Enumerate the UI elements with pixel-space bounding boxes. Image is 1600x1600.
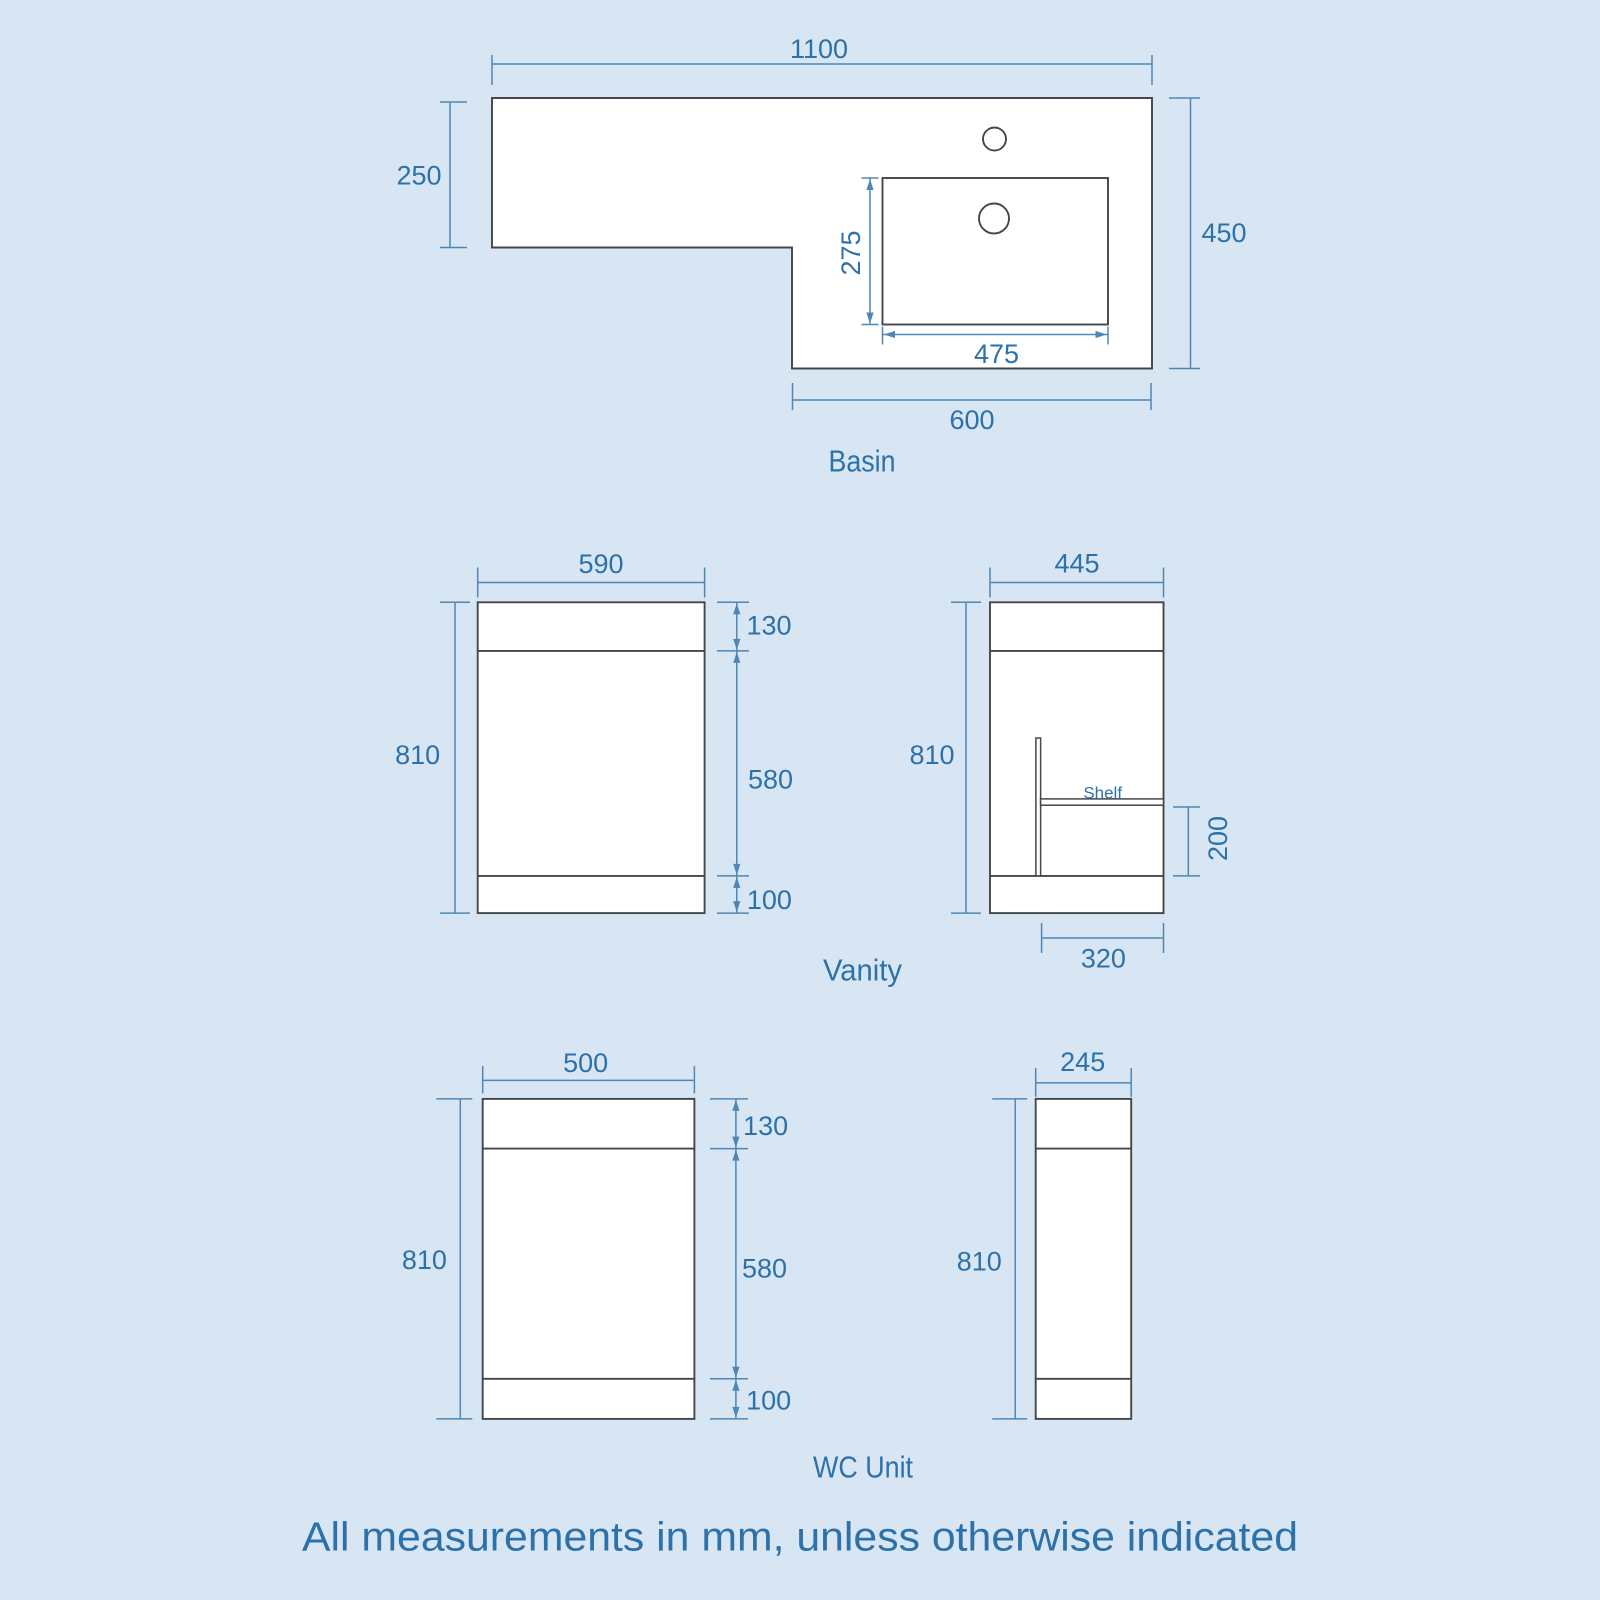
svg-text:580: 580 [742, 1253, 787, 1283]
svg-text:450: 450 [1201, 218, 1246, 248]
svg-text:590: 590 [578, 549, 623, 579]
svg-text:130: 130 [743, 1111, 788, 1141]
svg-text:100: 100 [746, 1385, 791, 1415]
svg-text:250: 250 [396, 161, 441, 191]
svg-text:580: 580 [748, 765, 793, 795]
svg-text:Vanity: Vanity [823, 952, 902, 987]
svg-text:245: 245 [1060, 1047, 1105, 1077]
svg-text:445: 445 [1054, 549, 1099, 579]
svg-text:500: 500 [563, 1048, 608, 1078]
svg-text:275: 275 [836, 230, 866, 275]
svg-text:475: 475 [974, 339, 1019, 369]
svg-text:1100: 1100 [790, 34, 848, 64]
svg-text:810: 810 [909, 740, 954, 770]
svg-text:810: 810 [395, 740, 440, 770]
svg-text:100: 100 [747, 885, 792, 915]
svg-text:200: 200 [1203, 816, 1233, 861]
svg-text:Basin: Basin [829, 443, 896, 478]
svg-text:130: 130 [746, 611, 791, 641]
svg-text:600: 600 [949, 405, 994, 435]
svg-text:All measurements in mm, unless: All measurements in mm, unless otherwise… [302, 1513, 1298, 1559]
svg-text:WC Unit: WC Unit [813, 1449, 913, 1484]
svg-text:810: 810 [402, 1245, 447, 1275]
svg-text:Shelf: Shelf [1083, 784, 1122, 803]
svg-text:320: 320 [1081, 944, 1126, 974]
svg-text:810: 810 [957, 1247, 1002, 1277]
